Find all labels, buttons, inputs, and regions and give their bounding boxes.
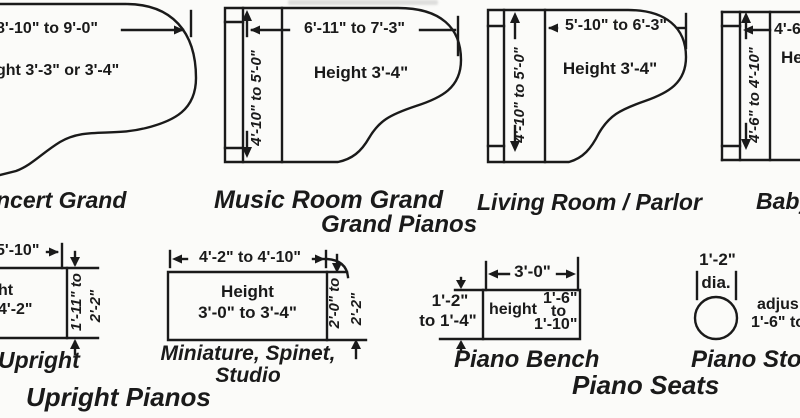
music-room-grand-label: Music Room Grand bbox=[214, 187, 443, 214]
upright-height-frag2: 4'-2" bbox=[0, 301, 33, 318]
music-room-grand-width: 4'-10" to 5'-0" bbox=[249, 36, 267, 160]
bench-depth-line1: 1'-2" bbox=[421, 292, 479, 310]
upright-depth-line2: 2'-2" bbox=[88, 276, 104, 336]
upright-length: 5'-10" bbox=[0, 242, 39, 259]
upright-depth-line1: 1'-11" to bbox=[69, 260, 85, 344]
bench-depth-line2: to 1'-4" bbox=[412, 312, 484, 330]
miniature-length: 4'-2" to 4'-10" bbox=[186, 249, 314, 266]
concert-grand-height: ght 3'-3" or 3'-4" bbox=[0, 62, 119, 79]
baby-grand-height: He bbox=[781, 49, 800, 67]
living-room-label: Living Room / Parlor bbox=[477, 190, 702, 215]
stool-diameter-unit: dia. bbox=[690, 274, 742, 292]
stool-note-line2: 1'-6" to bbox=[751, 314, 800, 331]
living-room-height: Height 3'-4" bbox=[549, 60, 671, 78]
bench-height-word: height bbox=[489, 301, 537, 318]
miniature-height-line2: 3'-0" to 3'-4" bbox=[168, 304, 327, 322]
baby-grand-width: 4'-6" to 4'-10" bbox=[747, 33, 765, 157]
stool-diameter: 1'-2" bbox=[690, 251, 745, 269]
living-room-width: 4'-10" to 5'-0" bbox=[512, 33, 530, 157]
bench-length: 3'-0" bbox=[505, 263, 560, 281]
miniature-height-line1: Height bbox=[168, 283, 327, 301]
bench-height-line3: 1'-10" bbox=[534, 316, 577, 333]
music-room-grand-height: Height 3'-4" bbox=[299, 64, 423, 82]
upright-height-frag1: ht bbox=[0, 282, 13, 299]
baby-grand-length: 4'-6 bbox=[774, 21, 800, 38]
baby-grand-label: Baby bbox=[756, 189, 800, 214]
grand-pianos-category: Grand Pianos bbox=[321, 212, 477, 238]
stool-note-line1: adjus bbox=[757, 296, 799, 313]
concert-grand-label: ncert Grand bbox=[0, 188, 126, 213]
upright-label: Upright bbox=[0, 348, 80, 373]
miniature-label-line1: Miniature, Spinet, bbox=[143, 343, 353, 366]
miniature-depth-line1: 2'-0" to bbox=[327, 261, 343, 345]
concert-grand-length: 8'-10" to 9'-0" bbox=[0, 20, 98, 37]
miniature-depth-line2: 2'-2" bbox=[349, 279, 365, 339]
music-room-grand-length: 6'-11" to 7'-3" bbox=[292, 20, 417, 37]
miniature-label-line2: Studio bbox=[143, 365, 353, 388]
piano-seats-category: Piano Seats bbox=[572, 371, 719, 399]
piano-dimensions-diagram: 8'-10" to 9'-0" ght 3'-3" or 3'-4" ncert… bbox=[0, 0, 800, 418]
living-room-length: 5'-10" to 6'-3" bbox=[549, 17, 683, 34]
